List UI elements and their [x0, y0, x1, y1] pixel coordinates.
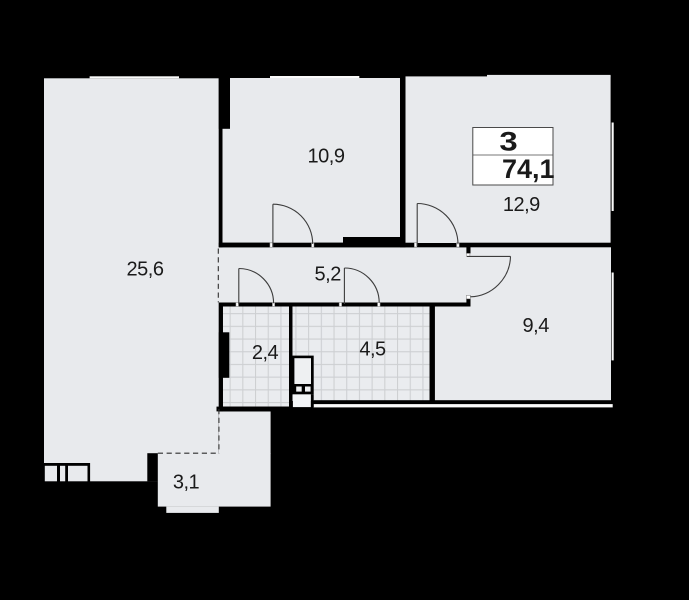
svg-text:3: 3: [499, 127, 517, 157]
svg-text:12,9: 12,9: [503, 194, 540, 216]
svg-text:2,4: 2,4: [252, 342, 279, 364]
svg-text:4,5: 4,5: [359, 339, 386, 361]
svg-text:25,6: 25,6: [127, 259, 164, 281]
svg-text:10,9: 10,9: [308, 145, 345, 167]
svg-text:3,1: 3,1: [173, 471, 200, 493]
svg-text:74,1: 74,1: [502, 154, 555, 184]
svg-text:9,4: 9,4: [523, 315, 550, 337]
svg-text:5,2: 5,2: [315, 263, 342, 285]
